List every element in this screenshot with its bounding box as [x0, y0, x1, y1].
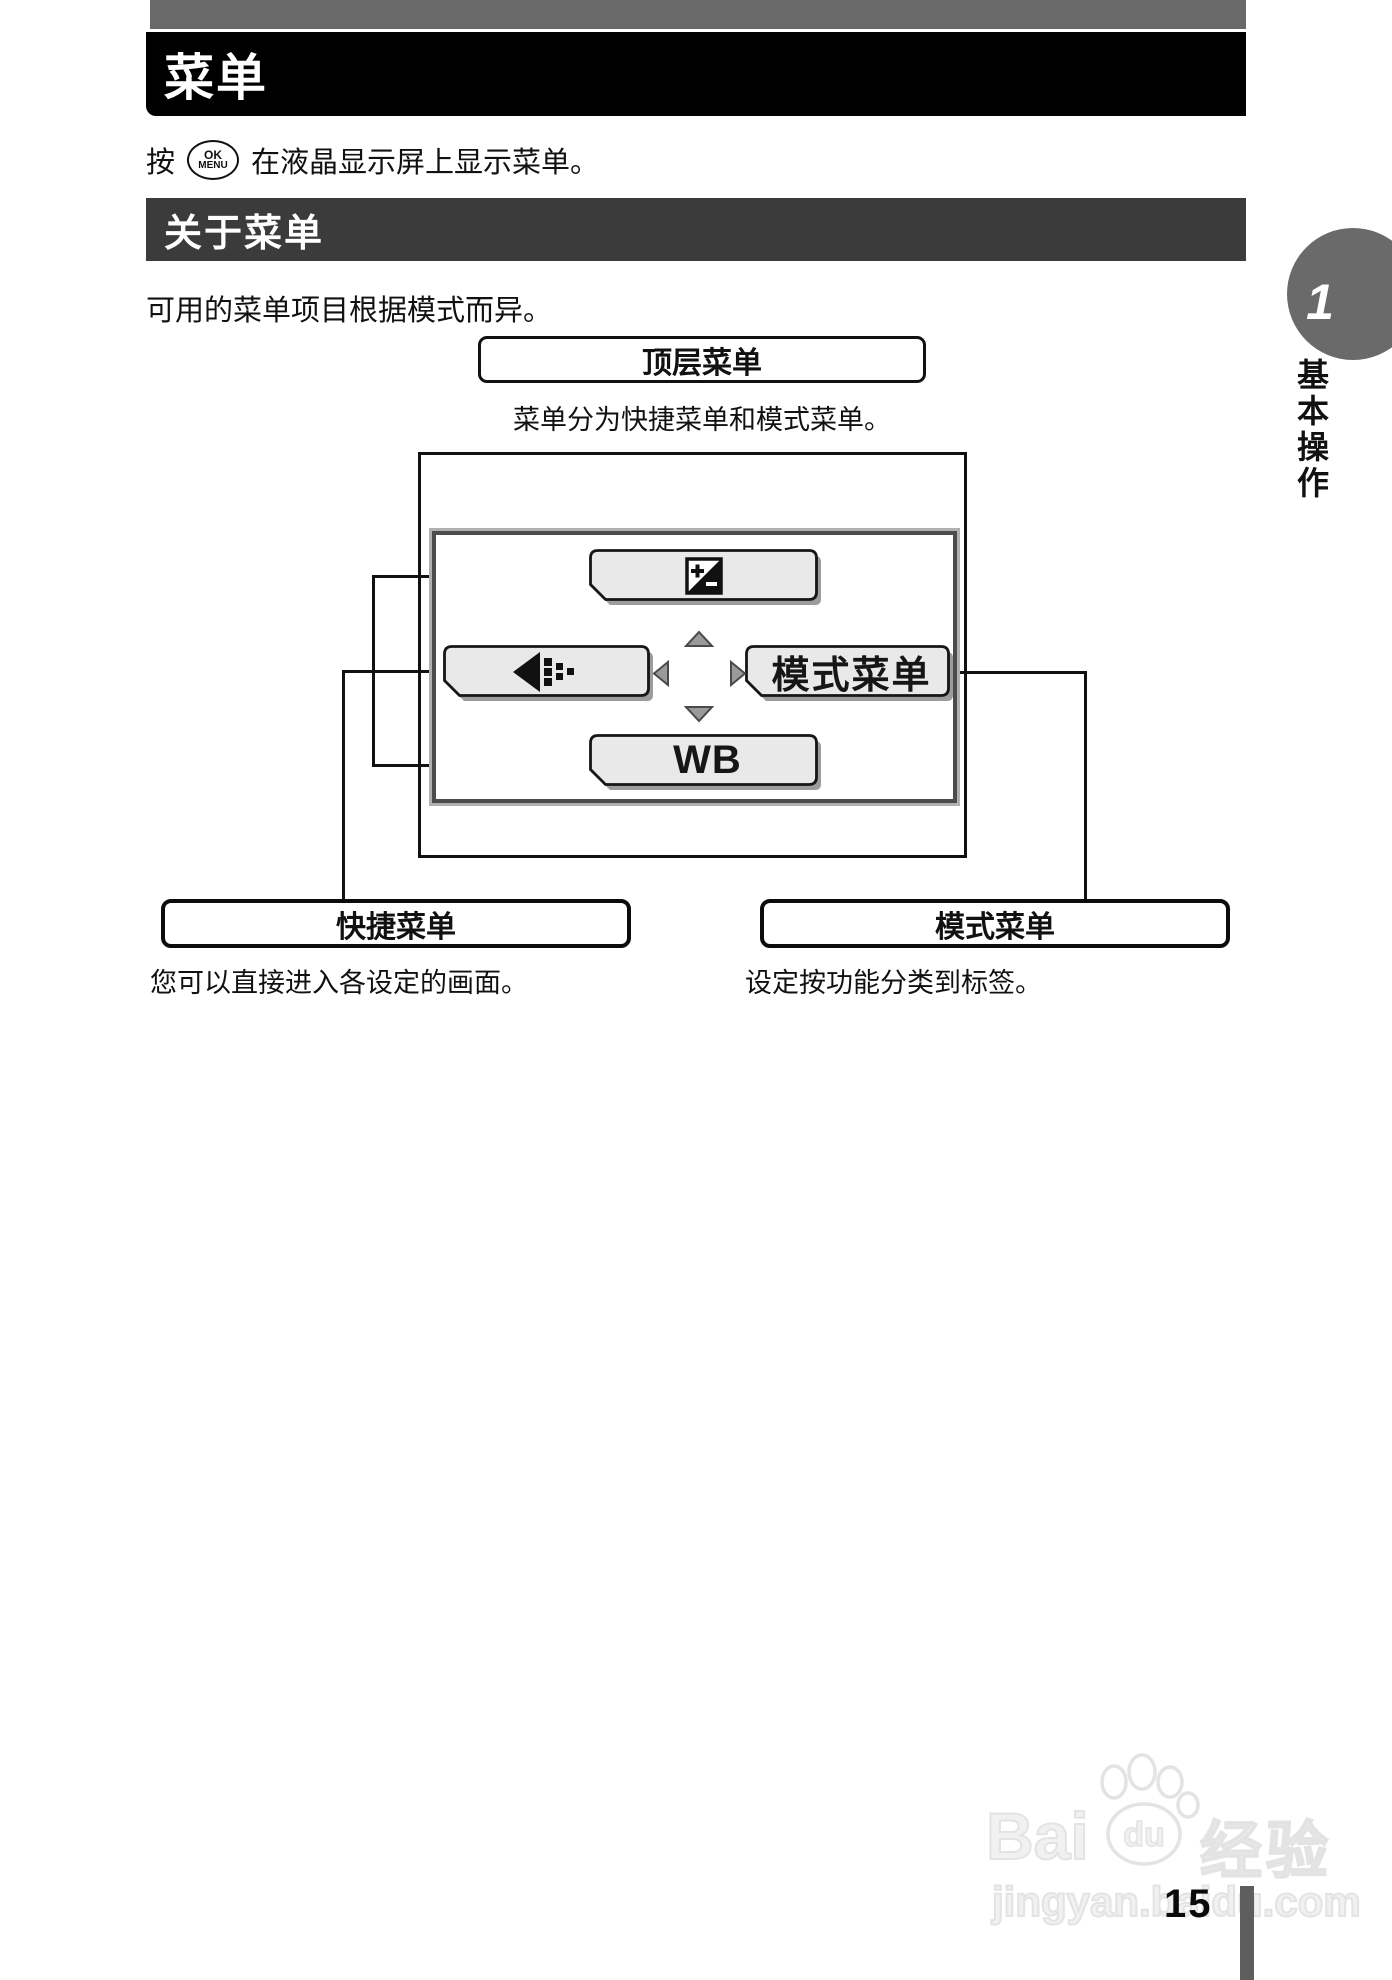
left-arrow-icon	[652, 660, 670, 687]
watermark-brand: Bai	[986, 1798, 1089, 1874]
ok-menu-button-icon: OK MENU	[187, 140, 239, 180]
watermark-brand-cn: 经验	[1200, 1800, 1332, 1890]
exposure-compensation-button	[589, 549, 826, 614]
baidu-paw-icon: du	[1090, 1750, 1202, 1872]
mode-menu-button: 模式菜单	[745, 645, 958, 710]
connector-shortcut-vertical	[342, 670, 345, 901]
top-menu-label-box: 顶层菜单	[478, 336, 926, 383]
image-quality-button	[443, 645, 658, 710]
mode-menu-label: 模式菜单	[935, 902, 1055, 946]
watermark-du-text: du	[1123, 1816, 1165, 1854]
chapter-title: 基本操作	[1288, 358, 1334, 502]
page-number: 15	[1164, 1882, 1213, 1927]
connector-mode-vertical	[1084, 671, 1087, 901]
white-balance-button-label: WB	[589, 734, 826, 786]
manual-page: 菜单 按 OK MENU 在液晶显示屏上显示菜单。 关于菜单 可用的菜单项目根据…	[0, 0, 1392, 1980]
down-arrow-icon	[684, 705, 714, 723]
top-menu-caption: 菜单分为快捷菜单和模式菜单。	[452, 398, 952, 437]
right-arrow-icon	[729, 660, 747, 687]
up-arrow-icon	[684, 630, 714, 648]
shortcut-menu-callout: 快捷菜单	[161, 899, 631, 948]
top-rule	[150, 0, 1246, 29]
section-title-bar: 关于菜单	[146, 198, 1246, 261]
chapter-number: 1	[1290, 273, 1350, 331]
mode-menu-caption: 设定按功能分类到标签。	[745, 961, 1042, 1000]
mode-menu-button-label: 模式菜单	[745, 645, 958, 697]
connector-mode-button	[948, 671, 1086, 674]
intro-prefix: 按	[146, 139, 175, 181]
footer-bar	[1240, 1886, 1254, 1980]
shortcut-menu-caption: 您可以直接进入各设定的画面。	[150, 961, 528, 1000]
exposure-compensation-icon	[685, 557, 723, 595]
section-body: 可用的菜单项目根据模式而异。	[146, 287, 552, 329]
intro-suffix: 在液晶显示屏上显示菜单。	[251, 139, 599, 181]
page-title-bar: 菜单	[146, 32, 1246, 116]
image-quality-icon	[513, 651, 579, 693]
top-menu-label: 顶层菜单	[642, 338, 762, 382]
menu-label: MENU	[198, 161, 227, 171]
section-title: 关于菜单	[146, 202, 324, 257]
page-title: 菜单	[146, 38, 268, 110]
shortcut-menu-label: 快捷菜单	[336, 902, 456, 946]
mode-menu-callout: 模式菜单	[760, 899, 1230, 948]
intro-line: 按 OK MENU 在液晶显示屏上显示菜单。	[146, 140, 599, 180]
white-balance-button: WB	[589, 734, 826, 799]
